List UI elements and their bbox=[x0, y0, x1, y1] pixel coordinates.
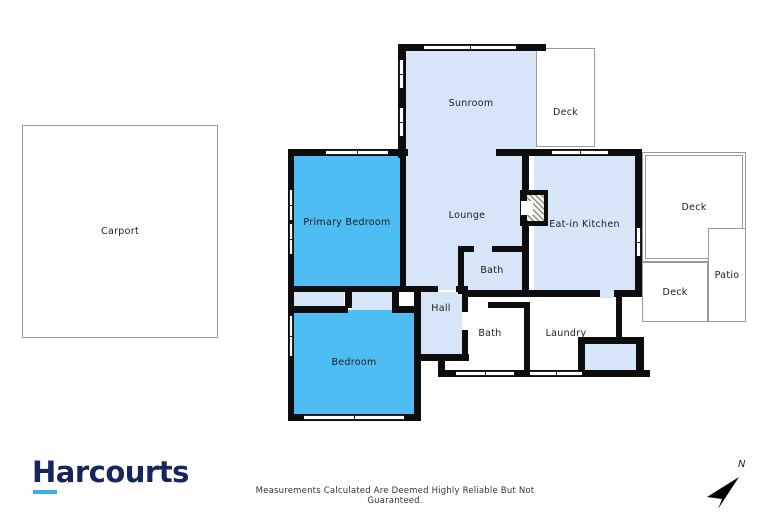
closet-left bbox=[294, 292, 344, 306]
room-primary-bedroom: Primary Bedroom bbox=[294, 156, 400, 288]
window bbox=[399, 108, 404, 136]
window bbox=[530, 371, 582, 376]
wall bbox=[288, 149, 294, 292]
room-bath-top: Bath bbox=[462, 250, 522, 290]
room-label-laundry: Laundry bbox=[546, 328, 587, 339]
room-label-sunroom: Sunroom bbox=[449, 98, 494, 109]
room-patio: Patio bbox=[708, 228, 746, 322]
window bbox=[552, 150, 608, 155]
wall bbox=[616, 296, 622, 341]
room-laundry: Laundry bbox=[528, 296, 604, 370]
harcourts-logo-text: Harcourts bbox=[32, 458, 189, 487]
room-eat-in-kitchen: Eat-in Kitchen bbox=[534, 155, 635, 290]
room-label-bath-lower: Bath bbox=[478, 328, 501, 339]
room-label-hall: Hall bbox=[431, 303, 450, 314]
north-compass: N bbox=[705, 455, 755, 510]
room-label-deck-top: Deck bbox=[553, 107, 578, 118]
room-label-bedroom: Bedroom bbox=[331, 357, 376, 368]
room-label-primary-bedroom: Primary Bedroom bbox=[303, 217, 390, 228]
wall bbox=[400, 149, 406, 292]
room-bath-lower: Bath bbox=[455, 296, 525, 370]
room-bedroom: Bedroom bbox=[294, 310, 414, 415]
north-arrow-icon bbox=[705, 455, 755, 510]
window bbox=[289, 190, 293, 220]
window bbox=[326, 150, 388, 155]
window bbox=[304, 415, 404, 420]
room-label-lounge: Lounge bbox=[449, 210, 486, 221]
room-label-eat-in-kitchen: Eat-in Kitchen bbox=[549, 219, 620, 230]
room-label-patio: Patio bbox=[715, 270, 740, 281]
disclaimer-text: Measurements Calculated Are Deemed Highl… bbox=[230, 486, 560, 506]
wall bbox=[635, 149, 642, 296]
north-label: N bbox=[738, 459, 745, 470]
window bbox=[289, 316, 293, 356]
room-sunroom: Sunroom bbox=[406, 51, 536, 155]
harcourts-logo-underline bbox=[33, 490, 57, 494]
window bbox=[636, 228, 641, 256]
window bbox=[399, 60, 404, 88]
room-label-carport: Carport bbox=[101, 226, 139, 237]
room-deck-top: Deck bbox=[536, 48, 595, 147]
room-label-bath-top: Bath bbox=[480, 265, 503, 276]
wall bbox=[288, 306, 348, 313]
room-carport: Carport bbox=[22, 125, 218, 338]
room-label-deck-lower: Deck bbox=[662, 287, 687, 298]
window bbox=[424, 45, 516, 50]
fireplace-opening bbox=[521, 201, 533, 215]
window bbox=[289, 224, 293, 254]
room-label-deck-right: Deck bbox=[681, 202, 706, 213]
wall bbox=[636, 337, 644, 377]
window bbox=[456, 371, 514, 376]
floor-plan: Carport Deck Deck Patio Deck Sunroom Pri… bbox=[0, 0, 768, 512]
harcourts-logo: Harcourts bbox=[32, 458, 189, 494]
room-deck-lower: Deck bbox=[642, 262, 708, 322]
